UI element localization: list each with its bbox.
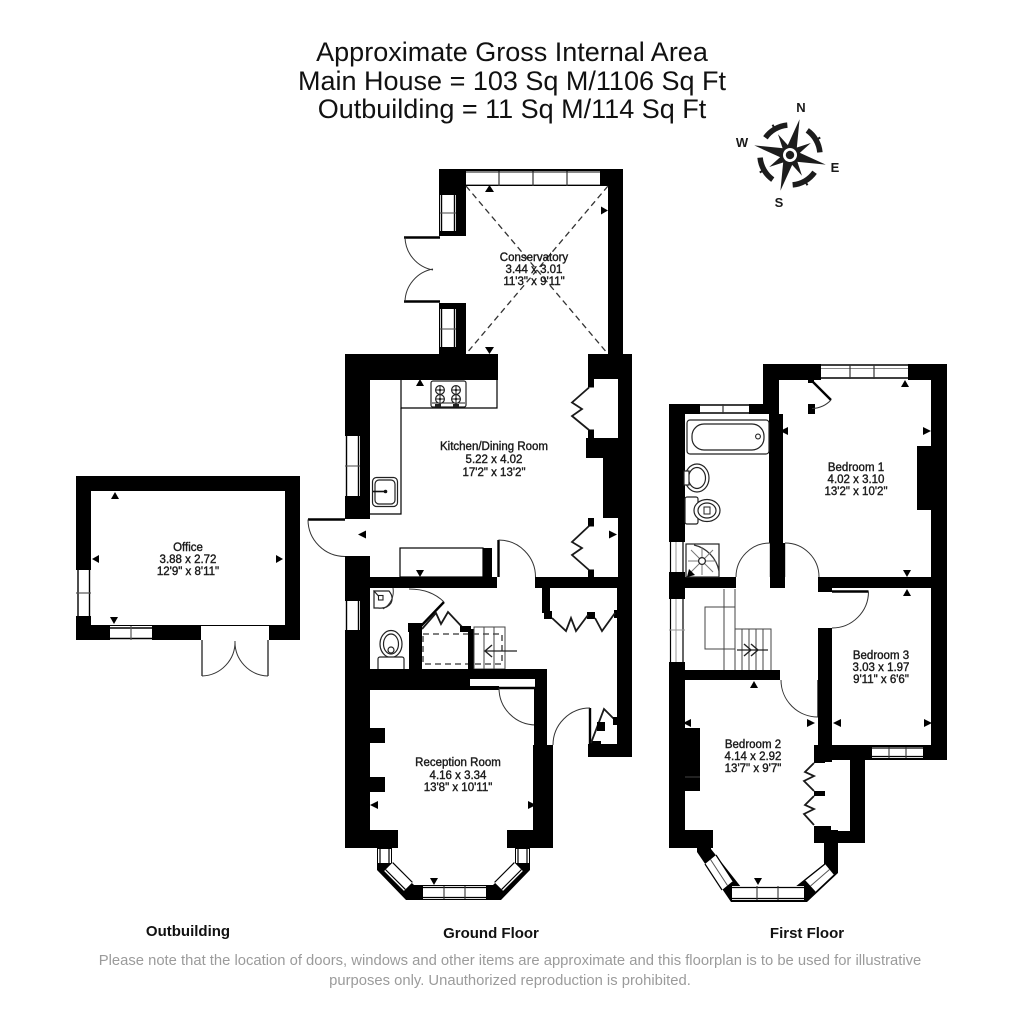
svg-text:Please note that the location: Please note that the location of doors, … — [99, 953, 922, 969]
svg-text:4.02 x 3.10: 4.02 x 3.10 — [828, 474, 885, 486]
svg-text:9'11" x 6'6": 9'11" x 6'6" — [853, 674, 909, 686]
svg-text:4.14 x 2.92: 4.14 x 2.92 — [725, 751, 782, 763]
svg-text:Reception Room: Reception Room — [415, 757, 501, 769]
svg-text:Outbuilding: Outbuilding — [146, 923, 230, 940]
svg-text:Office: Office — [173, 542, 203, 554]
svg-text:N: N — [796, 100, 805, 115]
svg-text:12'9" x 8'11": 12'9" x 8'11" — [157, 566, 219, 578]
svg-text:13'2" x 10'2": 13'2" x 10'2" — [824, 486, 887, 498]
svg-text:First Floor: First Floor — [770, 925, 844, 942]
svg-text:3.88 x 2.72: 3.88 x 2.72 — [160, 554, 217, 566]
svg-text:Kitchen/Dining Room: Kitchen/Dining Room — [440, 441, 548, 453]
svg-text:5.22 x 4.02: 5.22 x 4.02 — [466, 454, 523, 466]
svg-text:S: S — [775, 195, 784, 210]
svg-text:Approximate Gross Internal Are: Approximate Gross Internal Area — [316, 37, 709, 67]
svg-text:Outbuilding = 11 Sq M/114 Sq F: Outbuilding = 11 Sq M/114 Sq Ft — [318, 94, 707, 124]
svg-text:purposes only. Unauthorized re: purposes only. Unauthorized reproduction… — [329, 973, 691, 989]
svg-text:Bedroom 2: Bedroom 2 — [725, 739, 781, 751]
svg-text:Ground Floor: Ground Floor — [443, 925, 539, 942]
svg-text:11'3" x 9'11": 11'3" x 9'11" — [503, 276, 564, 288]
svg-text:13'8" x 10'11": 13'8" x 10'11" — [424, 782, 493, 794]
svg-text:Conservatory: Conservatory — [500, 252, 569, 264]
svg-text:4.16 x 3.34: 4.16 x 3.34 — [430, 770, 488, 782]
svg-text:3.44 x 3.01: 3.44 x 3.01 — [506, 264, 563, 276]
svg-text:Bedroom 1: Bedroom 1 — [828, 462, 884, 474]
svg-text:Main House = 103 Sq M/1106 Sq: Main House = 103 Sq M/1106 Sq Ft — [298, 66, 726, 96]
svg-text:Bedroom 3: Bedroom 3 — [853, 650, 909, 662]
svg-text:17'2" x 13'2": 17'2" x 13'2" — [462, 467, 525, 479]
svg-text:E: E — [831, 160, 840, 175]
svg-text:W: W — [736, 135, 749, 150]
svg-text:13'7" x 9'7": 13'7" x 9'7" — [725, 763, 782, 775]
svg-text:3.03 x 1.97: 3.03 x 1.97 — [853, 662, 910, 674]
